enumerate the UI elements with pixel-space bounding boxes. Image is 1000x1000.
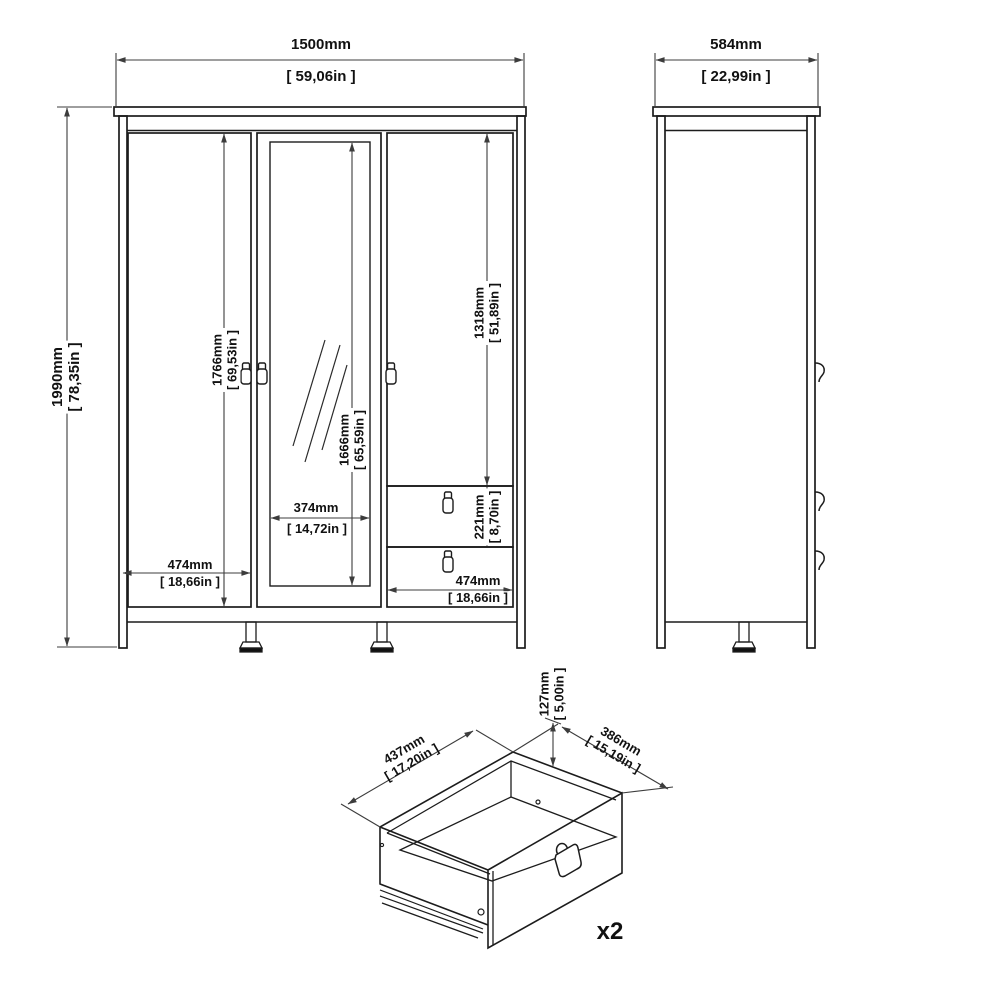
left-door-height-in: [ 69,53in ] — [225, 330, 240, 390]
mirror-height-in: [ 65,59in ] — [352, 410, 367, 470]
side-back-stile — [657, 116, 665, 648]
left-door-width-mm: 474mm — [165, 558, 216, 572]
drawer-rail-bottom — [382, 903, 478, 938]
side-handle-icon — [815, 492, 824, 511]
left-door-height: 1766mm [ 69,53in ] — [209, 328, 240, 392]
side-handle-icon — [815, 363, 824, 382]
door-handle-icon — [241, 363, 251, 384]
door-handle-icon — [386, 363, 396, 384]
side-handle-icon — [815, 551, 824, 570]
drawer-rail-line — [380, 890, 483, 929]
mirror-width-mm: 374mm — [291, 501, 342, 515]
right-section-width-in: [ 18,66in ] — [445, 591, 511, 605]
side-foot-icon — [733, 622, 755, 652]
front-foot-icon — [240, 622, 262, 652]
drawer-left-inner-edge — [387, 833, 490, 874]
right-door-height-in: [ 51,89in ] — [487, 283, 502, 343]
door-handle-icon — [257, 363, 267, 384]
front-top-panel — [114, 107, 526, 116]
front-right-stile — [517, 116, 525, 648]
side-view — [653, 107, 824, 652]
side-overall-depth-in: [ 22,99in ] — [698, 69, 773, 85]
drawer-detail — [380, 752, 622, 948]
drawer-pull-icon — [555, 844, 581, 877]
front-overall-width-in: [ 59,06in ] — [283, 69, 358, 85]
drawer-side-height-mm: 127mm — [537, 672, 552, 717]
front-foot-icon — [371, 622, 393, 652]
drawer-front-height-in: [ 8,70in ] — [487, 491, 502, 544]
mirror-height-mm: 1666mm — [337, 414, 352, 466]
front-overall-height-in: [ 78,35in ] — [67, 342, 84, 411]
mirror-height: 1666mm [ 65,59in ] — [336, 408, 367, 472]
left-door-height-mm: 1766mm — [210, 334, 225, 386]
rail-screw-icon — [478, 909, 484, 915]
extension-line — [476, 730, 513, 752]
side-front-stile — [807, 116, 815, 648]
drawer-handle-icon — [443, 492, 453, 513]
drawer-front-height-mm: 221mm — [472, 495, 487, 540]
drawer-handle-icon — [443, 551, 453, 572]
drawer-front-height: 221mm [ 8,70in ] — [471, 489, 502, 546]
side-top-panel — [653, 107, 820, 116]
front-overall-height: 1990mm [ 78,35in ] — [49, 340, 85, 413]
left-door-width-in: [ 18,66in ] — [157, 575, 223, 589]
mirror-width-in: [ 14,72in ] — [284, 522, 350, 536]
drawer-inner-bottom — [400, 797, 616, 881]
right-section-width-mm: 474mm — [453, 574, 504, 588]
screw-icon — [380, 843, 383, 846]
right-door-height: 1318mm [ 51,89in ] — [471, 281, 502, 345]
front-overall-height-mm: 1990mm — [50, 347, 67, 407]
extension-line — [513, 724, 558, 752]
drawer-rim-inner — [387, 761, 616, 833]
side-overall-depth-mm: 584mm — [707, 37, 765, 53]
extension-line — [341, 804, 380, 827]
front-overall-width-mm: 1500mm — [288, 37, 354, 53]
front-left-stile — [119, 116, 127, 648]
drawer-quantity-label: x2 — [597, 918, 624, 946]
drawer-side-height-in: [ 5,00in ] — [552, 668, 567, 721]
right-door-height-mm: 1318mm — [472, 287, 487, 339]
wardrobe-dimension-drawing: 1500mm [ 59,06in ] 1990mm [ 78,35in ] 17… — [0, 0, 1000, 1000]
front-mirror — [270, 142, 370, 586]
screw-icon — [536, 800, 540, 804]
drawer-side-height: 127mm [ 5,00in ] — [536, 666, 567, 723]
drawer-rail-line — [380, 896, 483, 933]
